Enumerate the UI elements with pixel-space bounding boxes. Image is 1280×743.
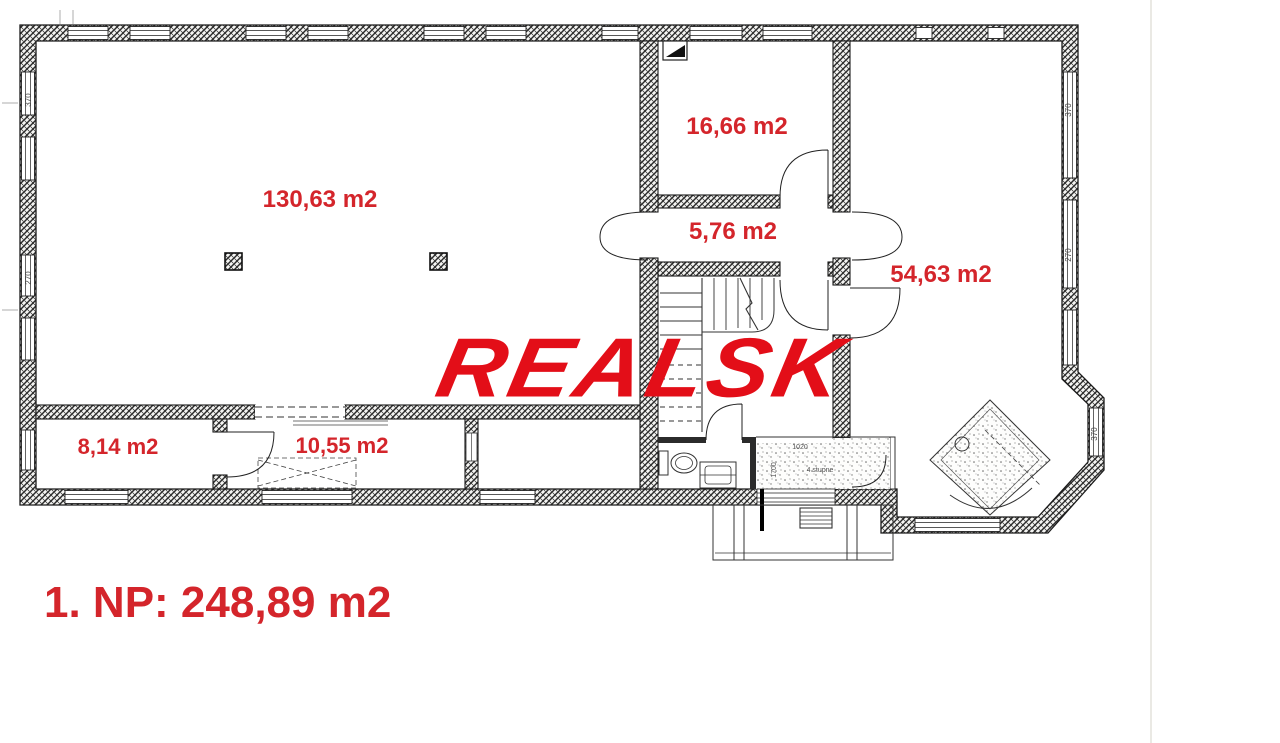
note-steps: 4 stupne [807,467,834,474]
chimney-notch [663,41,687,60]
porch [713,505,893,560]
room-area-label-corridor: 5,76 m2 [689,218,777,246]
toilet [659,451,697,475]
dim-vestibule-height: 1700 [771,462,778,478]
room-area-label-right-room: 54,63 m2 [890,261,991,289]
dim-bay-window: 370 [1090,427,1099,441]
dim-left-mid: 270 [24,271,33,285]
realsk-logo-watermark: REALSK [429,320,855,417]
dim-right-mid: 270 [1064,248,1073,262]
floorplan-page: 370 270 370 270 370 1020 1700 4 stupne 1… [0,0,1280,743]
room-area-label-small-left: 8,14 m2 [78,434,159,460]
floor-total-title: 1. NP: 248,89 m2 [44,578,391,628]
washbasin-unit [700,462,736,488]
shower-bay [930,400,1050,515]
dim-right-top: 370 [1064,103,1073,117]
dim-left-top: 370 [24,93,33,107]
room-area-label-top-room: 16,66 m2 [686,113,787,141]
room-area-label-hall: 130,63 m2 [263,186,378,214]
entrance-door [757,489,835,531]
room-area-label-small-mid: 10,55 m2 [296,433,389,459]
dim-vestibule-width: 1020 [792,444,808,451]
wall-opening-dashed [255,405,345,419]
pillars [225,253,447,270]
